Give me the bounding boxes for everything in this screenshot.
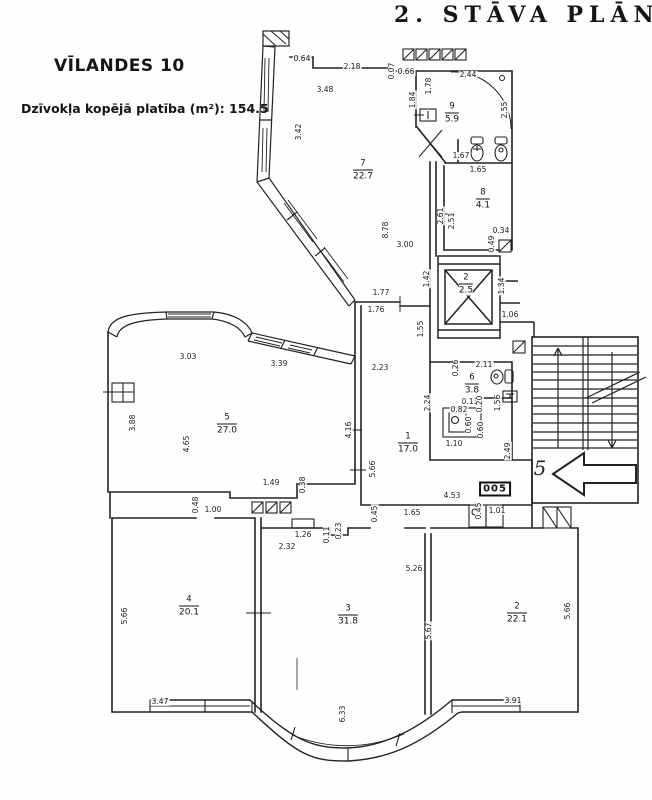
dimension-label: 5.66 [121,607,129,626]
dimension-label: 2.49 [504,442,512,461]
room-number: 4 [179,595,199,607]
room-label: 84.1 [476,188,490,211]
dimension-label: 6.33 [339,705,347,724]
dimension-label: 1.77 [372,289,391,297]
toilet-icon [495,137,507,161]
dimension-label: 2.51 [448,212,456,231]
dimension-label: 1.49 [262,479,281,487]
dimension-label: 3.42 [295,123,303,142]
room-number: 8 [476,188,490,200]
dimension-label: 1.78 [425,77,433,96]
dimension-label: 3.03 [179,353,198,361]
dimension-label: 1.34 [498,277,506,296]
dimension-label: 0.23 [335,522,343,541]
room-area: 2.5 [459,285,473,296]
entrance-arrow-label: 5 [534,456,547,480]
dimension-label: 3.91 [504,697,523,705]
dimension-label: 4.16 [345,421,353,440]
dimension-label: 2.55 [501,101,509,120]
room-number: 2 [507,602,527,614]
dimension-label: 1.26 [294,531,313,539]
dimension-label: 4.65 [183,435,191,454]
dimension-label: 1.76 [367,306,386,314]
dimension-label: 5.66 [564,602,572,621]
dimension-label: 0.38 [299,476,307,495]
apartment-number-badge: 005 [479,482,511,497]
room-label: 420.1 [179,595,199,618]
room-label: 117.0 [398,432,418,455]
dimension-label: 5.26 [405,565,424,573]
dimension-label: 0.45 [475,502,483,521]
elevator-shaft-icon [438,256,534,338]
dimension-label: 1.65 [469,166,488,174]
dimension-label: 0.45 [371,505,379,524]
dimension-label: 3.88 [129,414,137,433]
stairs-down-arrow [608,352,616,448]
room-number: 6 [465,373,479,385]
room-number: 2 [459,273,473,285]
room-area: 5.9 [445,114,459,125]
dimension-label: 8.78 [382,221,390,240]
room-area: 20.1 [179,607,199,618]
toilet-icon [491,370,513,384]
dimension-label: 1.10 [445,440,464,448]
toilet-icon [471,137,483,161]
room-area: 31.8 [338,616,358,627]
dimension-label: 0.66 [397,68,416,76]
room-number: 3 [338,604,358,616]
entrance-arrow-icon [553,453,636,495]
dimension-label: 1.65 [403,509,422,517]
dimension-label: 0.60 [465,416,473,435]
room-area: 22.7 [353,171,373,182]
dimension-label: 2.11 [475,361,494,369]
dimension-label: 2.44 [459,71,478,79]
dimension-label: 1.42 [423,270,431,289]
room-label: 527.0 [217,413,237,436]
dimension-label: 5.67 [425,622,433,641]
hatched-square-icons [252,49,571,528]
room-label: 222.1 [507,602,527,625]
dimension-label: 2.61 [437,207,445,226]
dimension-label: 0.48 [192,496,200,515]
room-label: 331.8 [338,604,358,627]
room-area: 22.1 [507,614,527,625]
dimension-label: 0.49 [488,235,496,254]
room-number: 5 [217,413,237,425]
dimension-label: 1.01 [488,507,507,515]
dimension-label: 0.07 [388,62,396,81]
bay-window-room5 [108,312,355,364]
dimension-label: 2.23 [371,364,390,372]
dimension-label: 3.48 [316,86,335,94]
dimension-label: 1.06 [501,311,520,319]
dimension-label: 0.11 [323,526,331,545]
dimension-label: 1.55 [417,320,425,339]
room-label: 722.7 [353,159,373,182]
dimension-label: 0.60 [477,421,485,440]
room-number: 1 [398,432,418,444]
room-label: 63.8 [465,373,479,396]
dimension-label: 1.56 [494,394,502,413]
dimension-label: 0.20 [476,395,484,414]
dimension-label: 0.64 [293,55,312,63]
dimension-label: 5.66 [369,460,377,479]
dimension-label: 0.26 [452,359,460,378]
dimension-label: 2.24 [424,394,432,413]
dimension-label: 3.39 [270,360,289,368]
dimension-label: 1.84 [409,91,417,110]
room-number: 9 [445,102,459,114]
room-number: 7 [353,159,373,171]
floorplan-page: 2. STĀVA PLĀNA VĪLANDES 10 Dzīvokļa kopē… [0,0,652,800]
room-area: 17.0 [398,444,418,455]
sink-icon [503,391,517,402]
dimension-label: 4.53 [443,492,462,500]
sink-icon [414,109,436,121]
bay-window-room7 [257,31,355,306]
room-label: 95.9 [445,102,459,125]
dimension-label: 3.00 [396,241,415,249]
room-label: 22.5 [459,273,473,296]
room-area: 27.0 [217,425,237,436]
dimension-label: 3.47 [151,698,170,706]
dimension-label: 2.18 [343,63,362,71]
dimension-label: 0.82 [450,406,469,414]
dimension-label: 2.32 [278,543,297,551]
dimension-label: 1.67 [452,152,471,160]
dimension-label: 1.00 [204,506,223,514]
floorplan-drawing [0,0,652,800]
room-area: 4.1 [476,200,490,211]
